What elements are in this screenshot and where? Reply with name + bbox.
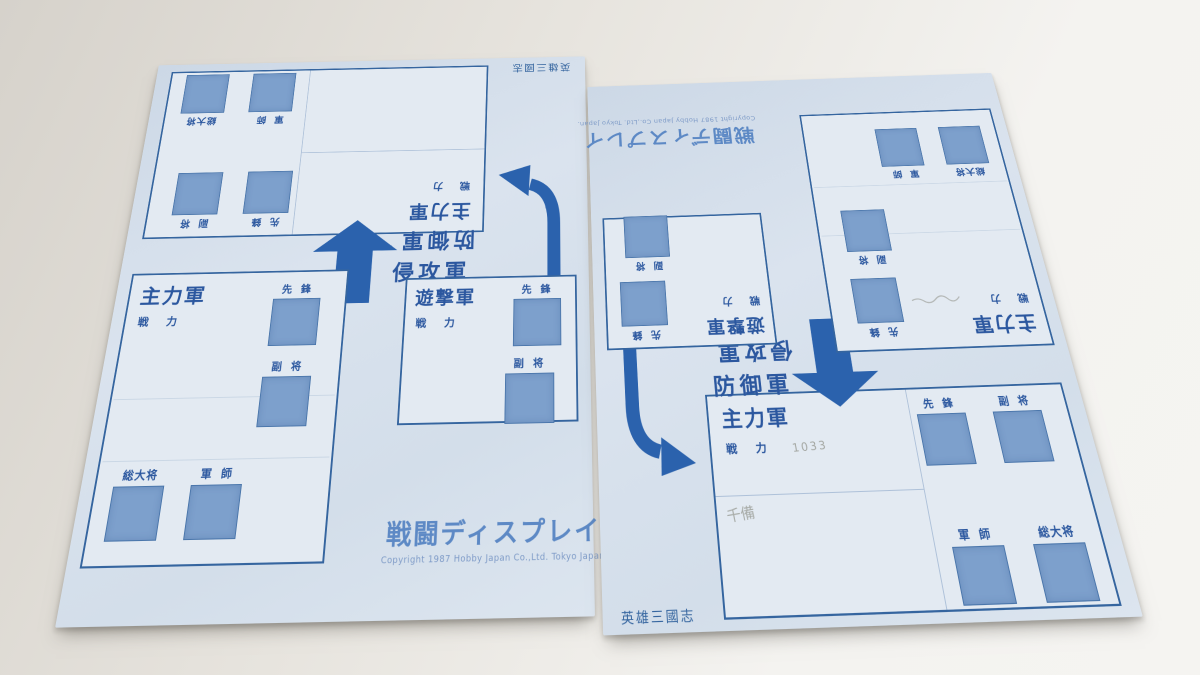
strategist-label: 軍 師: [189, 465, 246, 482]
unit-card-square: [840, 209, 892, 252]
photo-background: 主力軍 戦 力 先 鋒 副 将 軍 師: [0, 0, 1200, 675]
unit-card-square: [504, 373, 554, 424]
copyright-line: Copyright 1987 Hobby Japan Co.,Ltd. Toky…: [380, 551, 605, 566]
divider-line: [715, 489, 923, 497]
supreme-commander-slot: 総大将: [936, 126, 994, 179]
raiding-army-label: 遊撃軍: [704, 313, 766, 340]
vanguard-slot: 先 鋒: [849, 277, 910, 339]
defender-strength-label: 戦 力: [426, 179, 470, 193]
game-title: 英雄三國志: [604, 603, 712, 628]
unit-card-square: [1033, 542, 1100, 603]
strategist-label: 軍 師: [245, 113, 294, 126]
unit-card-square: [248, 73, 296, 112]
pencil-scribble: [907, 292, 963, 307]
strategist-label: 軍 師: [881, 167, 929, 180]
game-title: 英雄三國志: [498, 61, 584, 76]
defender-main-army-box: 主力軍 戦 力 1033 千備 先 鋒 副 将 軍 師: [705, 382, 1122, 619]
unit-card-square: [623, 215, 670, 258]
unit-card-square: [952, 545, 1017, 606]
battle-display-sheet-left: 主力軍 戦 力 先 鋒 副 将 軍 師: [55, 0, 595, 622]
attacker-strength-label: 戦 力: [982, 291, 1030, 307]
vice-general-label: 副 将: [624, 259, 673, 273]
vanguard-slot: 先 鋒: [912, 395, 979, 466]
supreme-commander-slot: 総大将: [102, 467, 169, 542]
strategist-slot: 軍 師: [181, 465, 246, 540]
vanguard-label: 先 鋒: [856, 324, 909, 339]
vice-general-label: 副 将: [261, 358, 315, 374]
divider-line: [302, 149, 485, 154]
product-title: 戦闘ディスプレイ: [381, 510, 605, 553]
battle-display-sheet-right: 主力軍 戦 力 1033 千備 先 鋒 副 将 軍 師: [603, 0, 1143, 626]
strategist-slot: 軍 師: [873, 128, 929, 181]
defender-strength-label: 戦 力: [725, 439, 775, 457]
raider-strength-label: 戦 力: [715, 294, 761, 310]
unit-card-square: [104, 486, 165, 542]
supreme-commander-slot: 総大将: [1026, 522, 1102, 603]
product-title: 戦闘ディスプレイ: [579, 123, 759, 154]
vice-general-label: 副 将: [987, 392, 1043, 409]
attacker-main-army-box: 主力軍 戦 力 先 鋒 副 将: [799, 108, 1055, 352]
vanguard-label: 先 鋒: [512, 282, 563, 297]
supreme-commander-slot: 総大将: [176, 74, 231, 127]
unit-card-square: [874, 128, 924, 167]
handwritten-note: 千備: [725, 501, 757, 527]
defender-main-army-label: 主力軍: [720, 399, 791, 433]
vanguard-label: 先 鋒: [620, 328, 671, 343]
strategist-slot: 軍 師: [245, 73, 298, 126]
unit-card-square: [172, 172, 224, 215]
raiding-army-box: 遊撃軍 戦 力 先 鋒 副 将: [602, 213, 777, 351]
vice-general-slot: 副 将: [987, 392, 1057, 463]
strategist-slot: 軍 師: [946, 525, 1019, 606]
divider-line: [814, 181, 1007, 188]
attacker-main-army-label: 主力軍: [138, 279, 208, 309]
supreme-commander-label: 総大将: [946, 165, 995, 178]
vanguard-label: 先 鋒: [239, 215, 290, 229]
sheet-card: 主力軍 戦 力 1033 千備 先 鋒 副 将 軍 師: [587, 73, 1143, 635]
unit-card-square: [256, 376, 311, 427]
defender-main-army-label: 主力軍: [406, 199, 471, 227]
unit-card-square: [993, 410, 1055, 463]
vanguard-slot: 先 鋒: [239, 171, 295, 229]
raiding-army-label: 遊撃軍: [414, 284, 476, 311]
vice-general-slot: 副 将: [839, 209, 897, 267]
handwritten-strength-value: 1033: [791, 438, 828, 455]
vanguard-slot: 先 鋒: [618, 281, 671, 343]
supreme-commander-label: 総大将: [1026, 522, 1086, 541]
unit-card-square: [620, 281, 668, 327]
vice-general-slot: 副 将: [167, 172, 225, 230]
vice-general-slot: 副 将: [502, 355, 556, 424]
attacker-main-army-box: 主力軍 戦 力 先 鋒 副 将 総大将: [80, 269, 350, 568]
attacker-strength-label: 戦 力: [137, 314, 186, 330]
vanguard-slot: 先 鋒: [266, 282, 324, 346]
unit-card-square: [917, 413, 977, 466]
defending-army-label: 防御軍: [712, 367, 795, 402]
vice-general-slot: 副 将: [622, 215, 673, 273]
unit-card-square: [850, 277, 904, 323]
flanking-arrow: [594, 328, 710, 480]
vanguard-label: 先 鋒: [272, 282, 324, 297]
vice-general-slot: 副 将: [254, 358, 314, 427]
supreme-commander-label: 総大将: [112, 467, 169, 484]
unit-card-square: [243, 171, 293, 214]
attacker-main-army-label: 主力軍: [969, 310, 1041, 341]
vice-general-label: 副 将: [167, 217, 218, 231]
unit-card-square: [938, 126, 990, 165]
unit-card-square: [180, 74, 229, 113]
defending-army-label: 防御軍: [397, 226, 476, 257]
vanguard-slot: 先 鋒: [511, 282, 563, 347]
vice-general-label: 副 将: [503, 355, 556, 371]
raider-strength-label: 戦 力: [415, 315, 462, 331]
vice-general-label: 副 将: [846, 253, 897, 267]
title-block: 戦闘ディスプレイ Copyright 1987 Hobby Japan Co.,…: [380, 510, 605, 567]
unit-card-square: [513, 298, 561, 346]
title-block: 戦闘ディスプレイ Copyright 1987 Hobby Japan Co.,…: [579, 114, 759, 154]
unit-card-square: [183, 484, 242, 540]
strategist-label: 軍 師: [946, 525, 1005, 544]
vanguard-label: 先 鋒: [912, 395, 967, 412]
sheet-card: 主力軍 戦 力 先 鋒 副 将 軍 師: [55, 56, 595, 627]
divider-line: [102, 457, 329, 463]
supreme-commander-label: 総大将: [176, 115, 225, 128]
raiding-army-box: 遊撃軍 戦 力 先 鋒 副 将: [397, 275, 579, 426]
unit-card-square: [268, 298, 321, 346]
defender-main-army-box: 主力軍 戦 力 先 鋒 副 将 軍 師: [142, 65, 488, 239]
